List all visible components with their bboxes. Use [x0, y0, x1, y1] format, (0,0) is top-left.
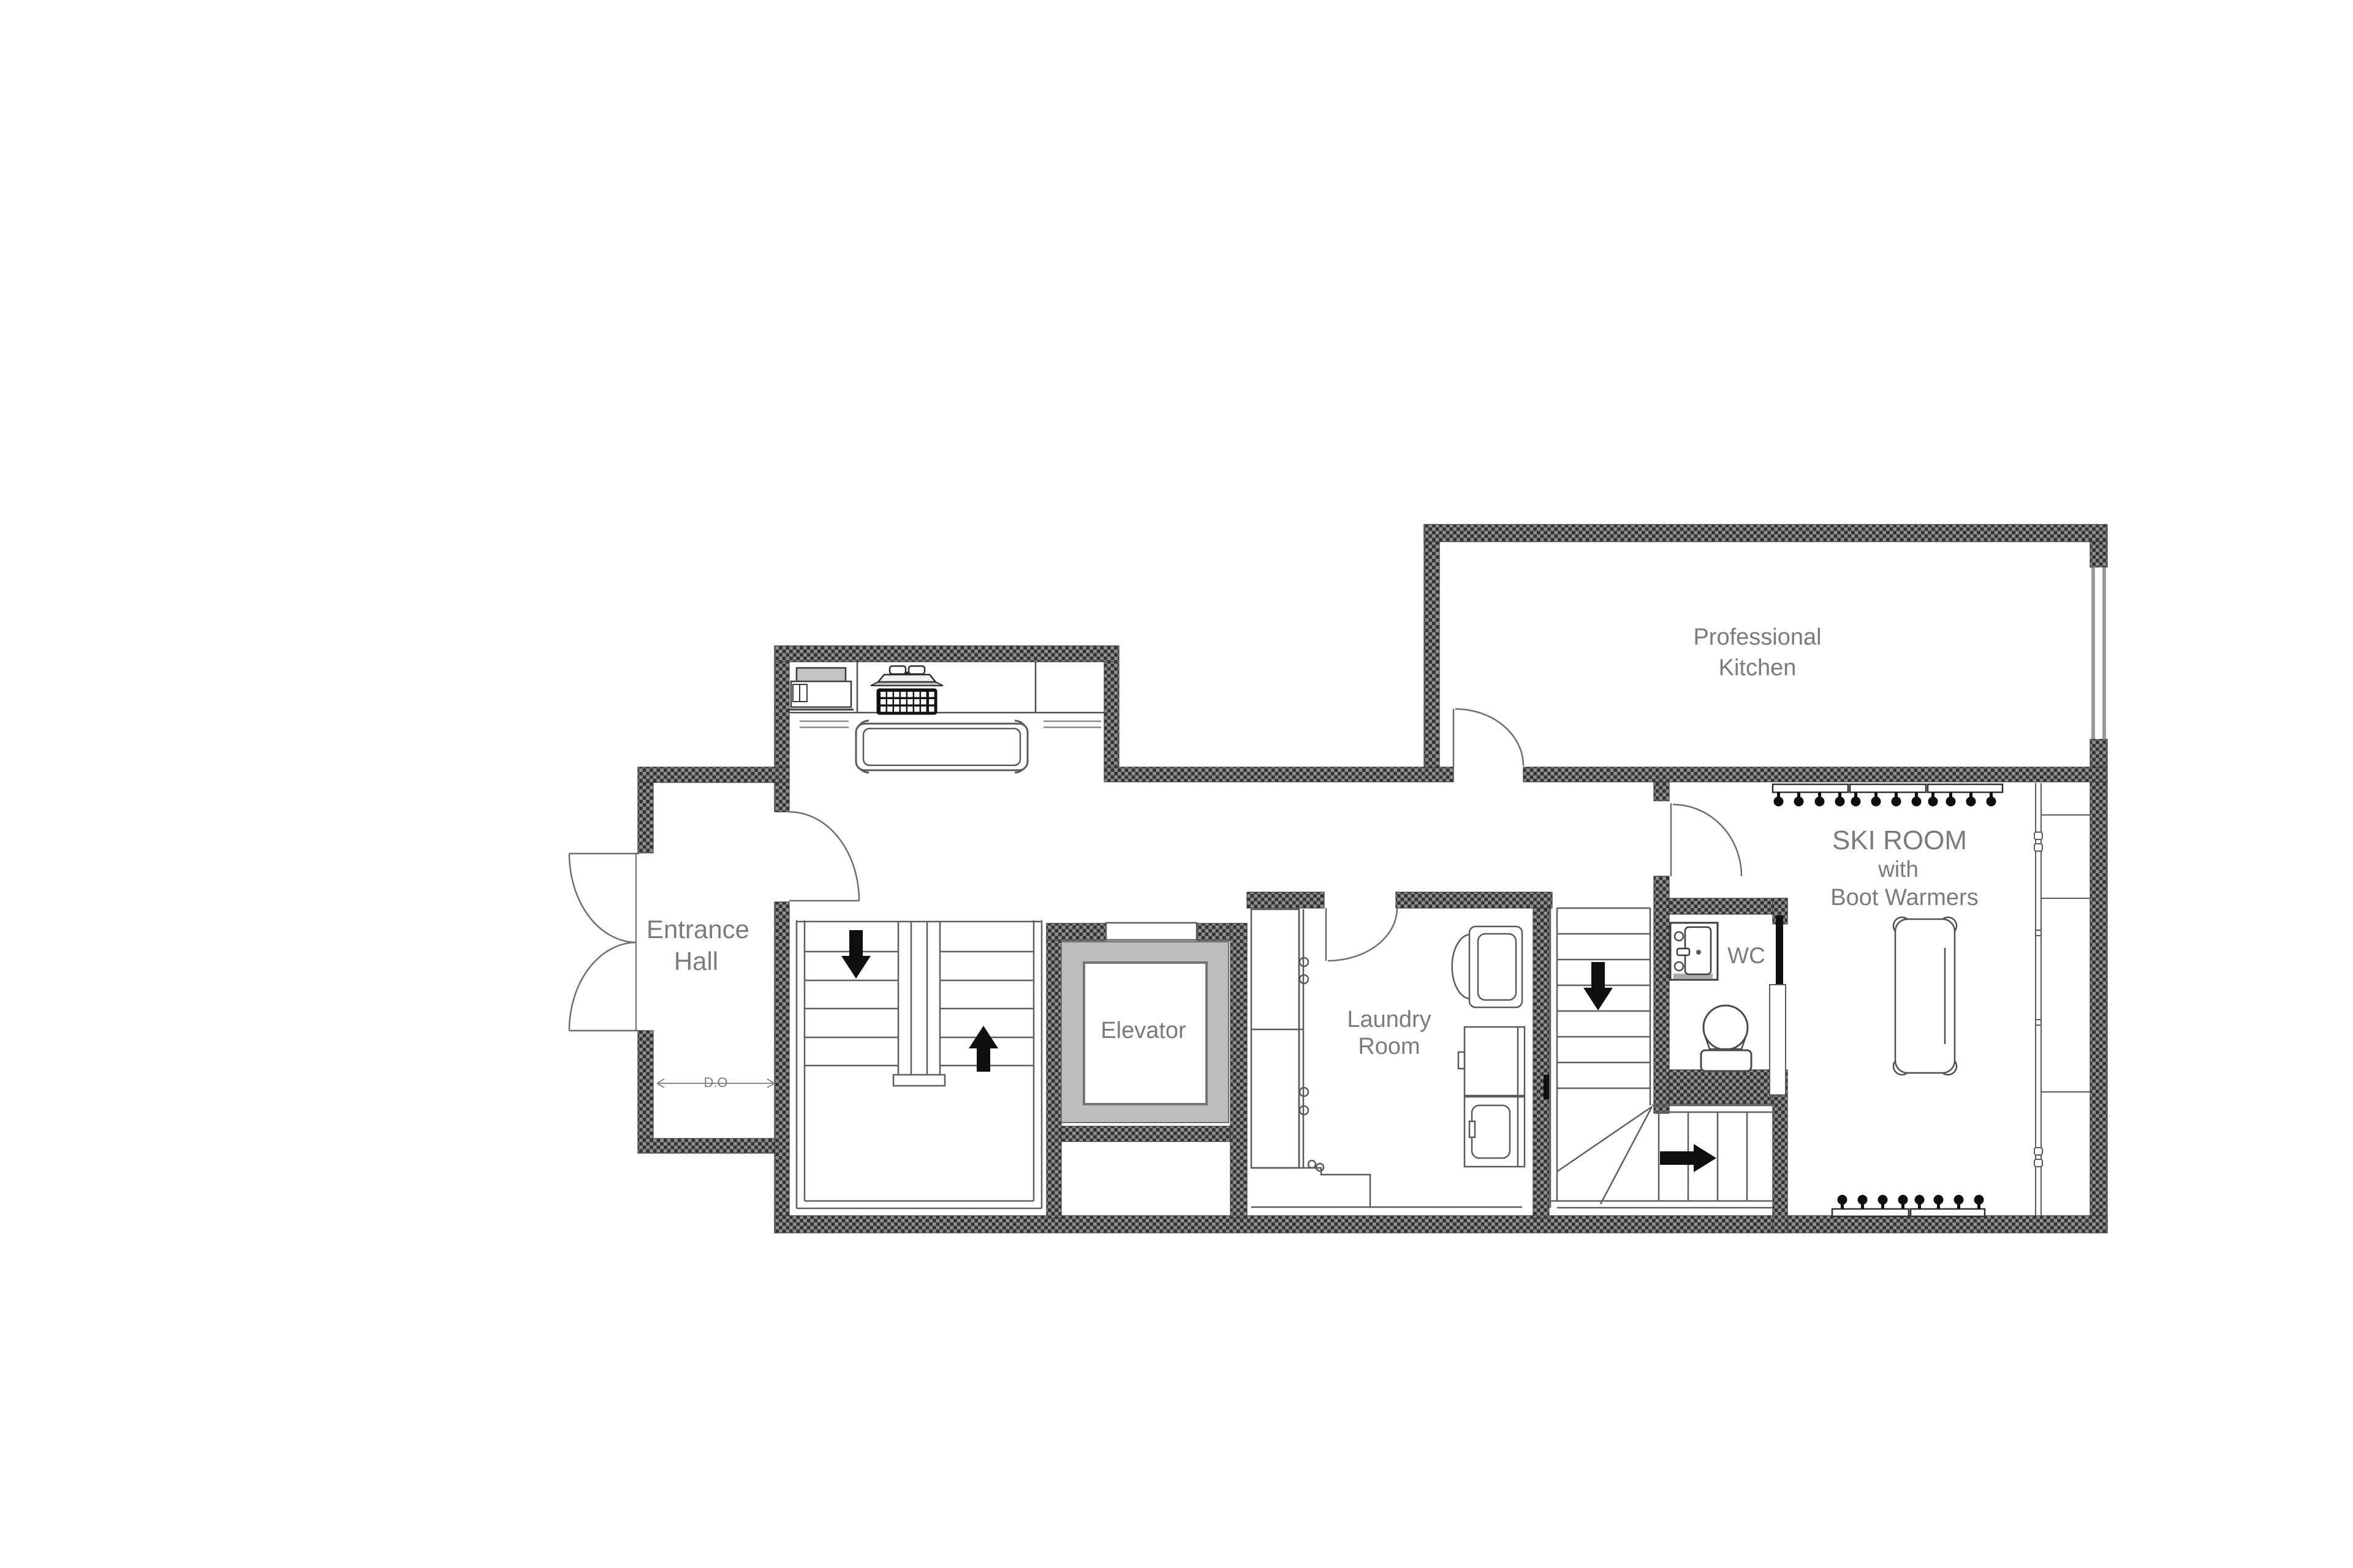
svg-text:Laundry: Laundry: [1347, 1007, 1431, 1032]
svg-text:Room: Room: [1358, 1034, 1420, 1059]
svg-text:SKI ROOM: SKI ROOM: [1832, 825, 1967, 855]
svg-text:with: with: [1877, 857, 1919, 882]
svg-text:D.O: D.O: [703, 1075, 727, 1090]
svg-text:Kitchen: Kitchen: [1719, 655, 1797, 681]
svg-text:Hall: Hall: [674, 947, 718, 975]
svg-text:WC: WC: [1727, 943, 1765, 968]
svg-text:Professional: Professional: [1693, 624, 1821, 650]
svg-text:Elevator: Elevator: [1101, 1018, 1186, 1043]
svg-text:Boot Warmers: Boot Warmers: [1830, 885, 1978, 911]
svg-text:Entrance: Entrance: [646, 915, 749, 944]
